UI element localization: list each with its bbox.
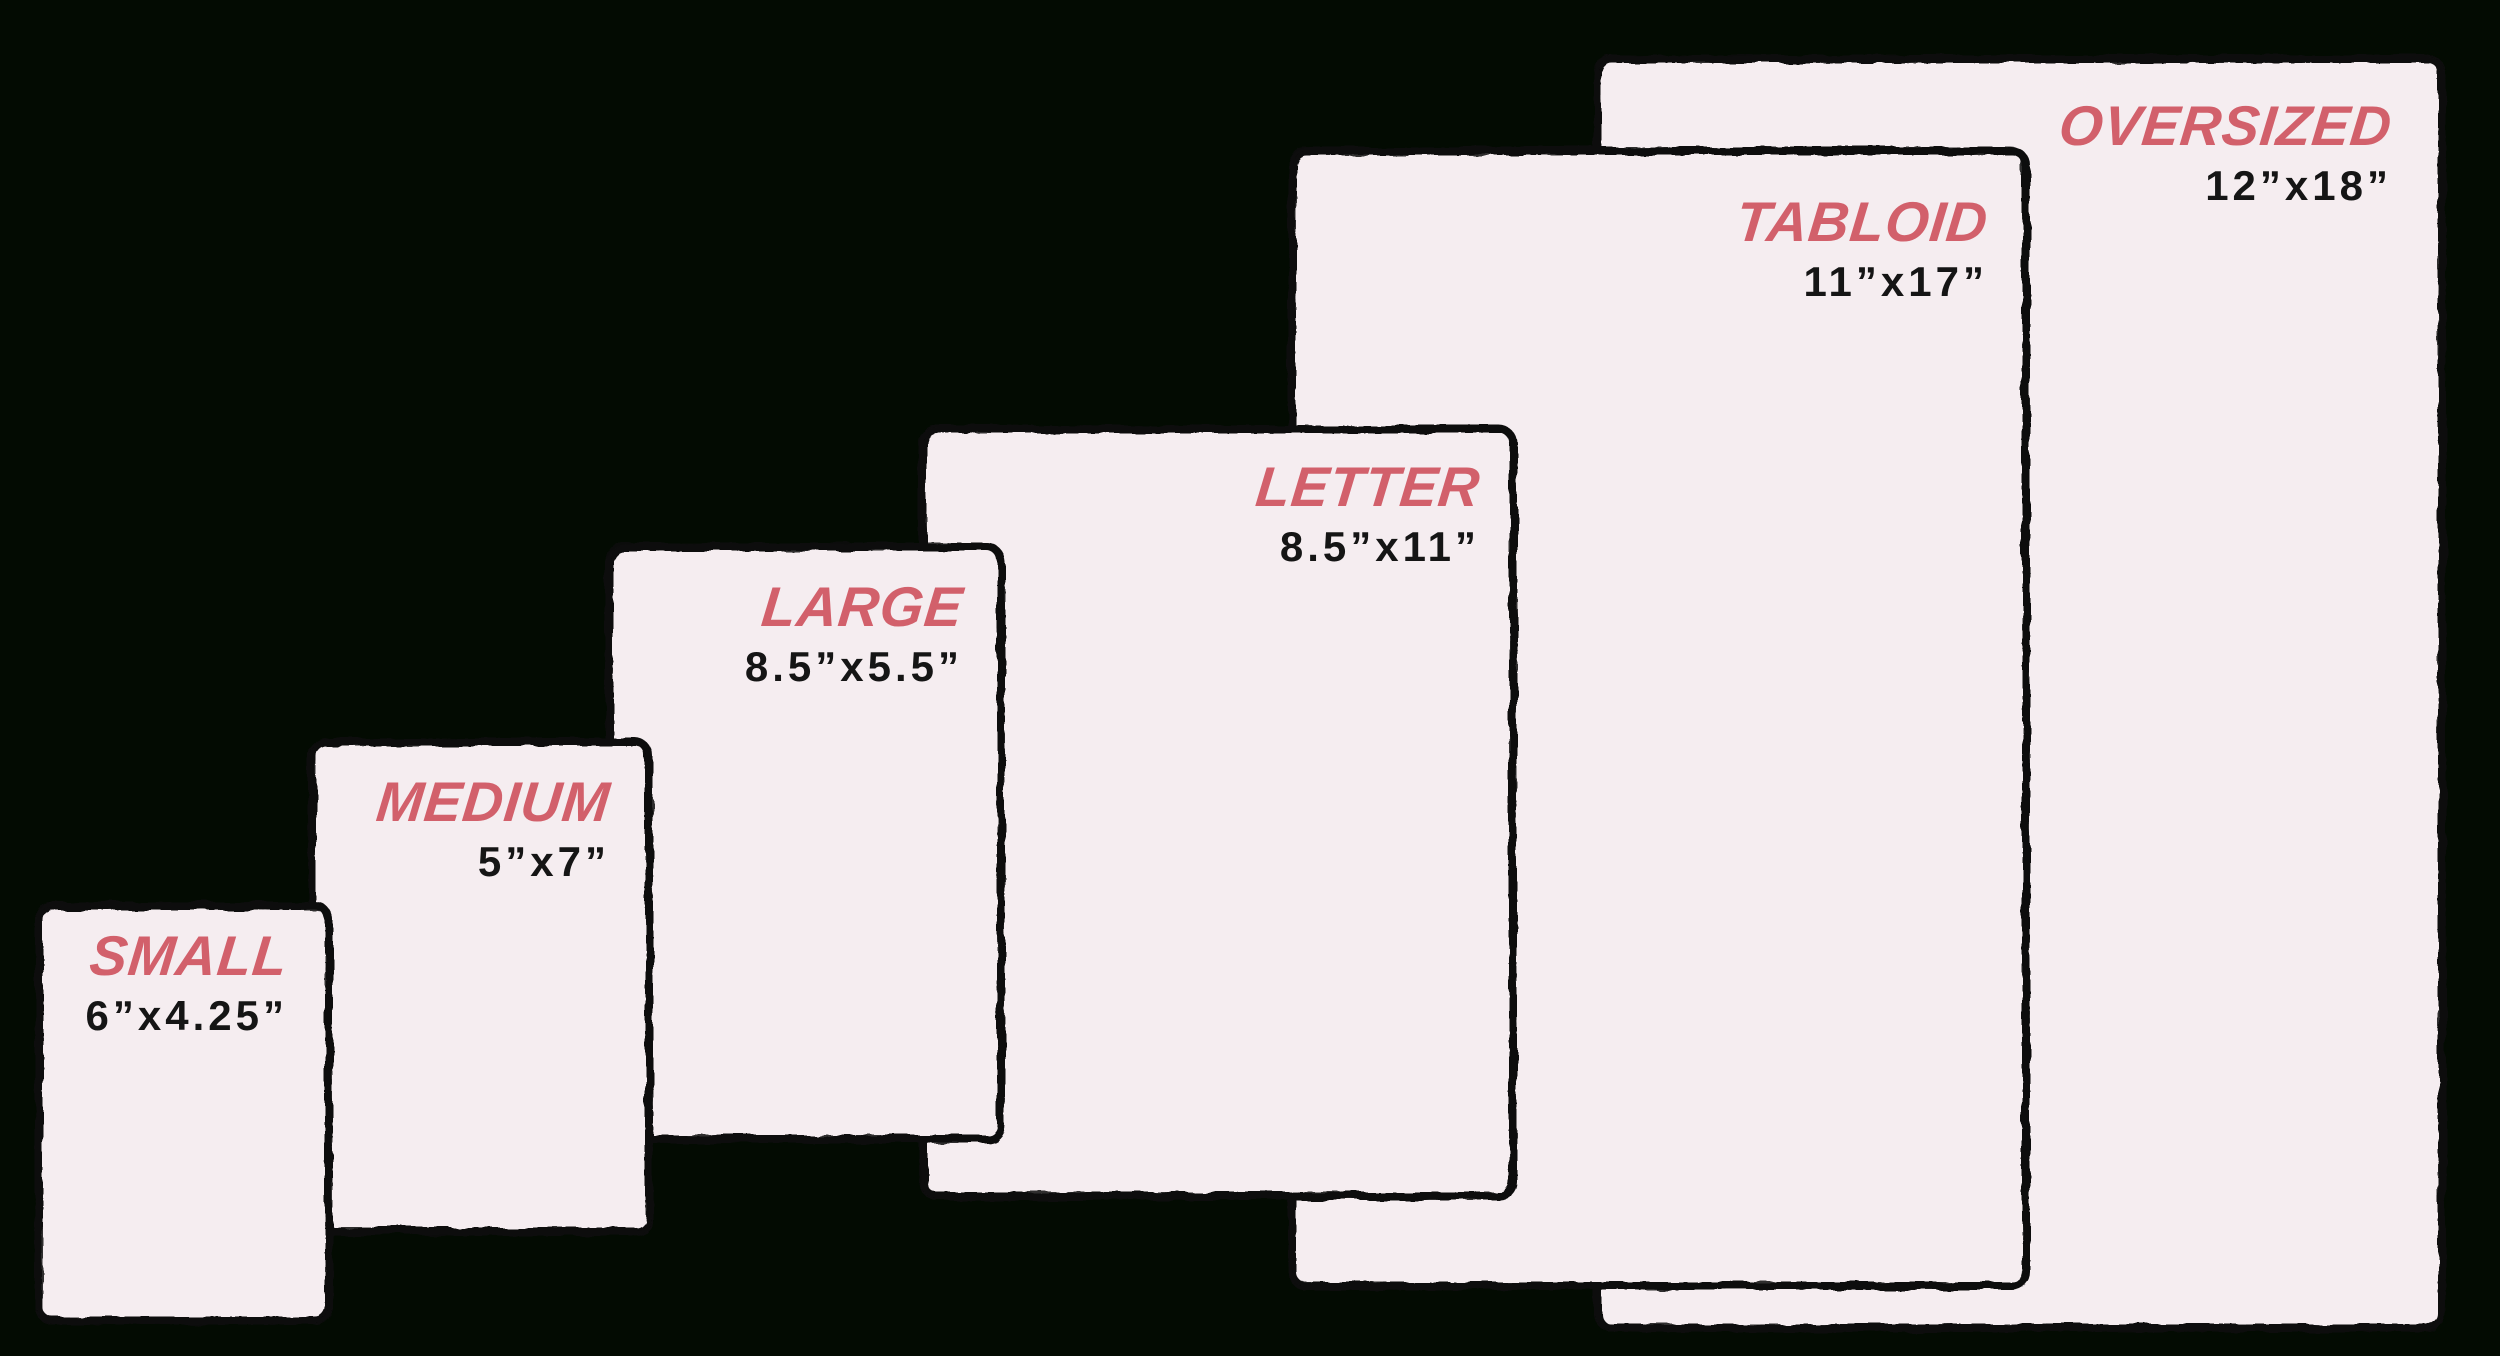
- paper-cards-canvas: [0, 0, 2500, 1356]
- card-shape-medium: [312, 742, 649, 1231]
- paper-size-comparison-diagram: OVERSIZED 12”x18” TABLOID 11”x17” LETTER…: [0, 0, 2500, 1356]
- card-shape-letter: [923, 429, 1513, 1196]
- card-shape-small: [39, 906, 329, 1321]
- card-shape-large: [609, 547, 1001, 1139]
